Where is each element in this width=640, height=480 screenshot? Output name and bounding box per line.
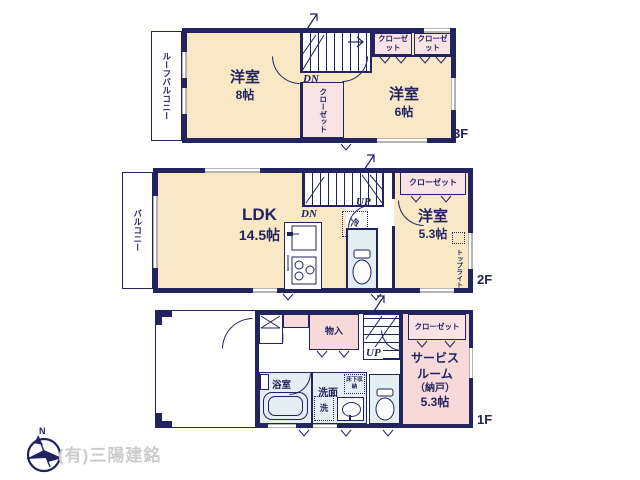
floor-label-3f: 3F [453, 126, 468, 141]
window [205, 168, 260, 173]
closet-door-mark [379, 56, 391, 64]
window [468, 233, 473, 269]
service-room-label: サービス ルーム （納戸） 5.3帖 [402, 350, 468, 412]
room-name: 洋室 [418, 207, 448, 227]
vent-mark [382, 429, 394, 437]
room-size: 8帖 [236, 88, 255, 104]
stairs-up-label-1f: UP [364, 347, 383, 359]
window [420, 288, 454, 293]
room-name: 洋室 [389, 85, 419, 105]
toilet-icon [372, 383, 398, 427]
service-room-line3: （納戸） [415, 382, 455, 395]
underfloor-storage: 床下収納 [344, 374, 365, 394]
floor-label-2f: 2F [477, 272, 492, 287]
room-label-west-3f: 洋室 8帖 [200, 65, 290, 107]
stairs-2f [302, 173, 384, 207]
closet-3f-center: クローゼット [302, 82, 344, 138]
window [268, 424, 296, 428]
roof-balcony: ルーフバルコニー [151, 31, 182, 141]
room-size: 6帖 [395, 105, 414, 121]
storage-closet: 物入 [309, 314, 359, 350]
closet-2f: クローゼット [400, 172, 466, 195]
room-size: 14.5帖 [239, 226, 280, 244]
closet-door-mark [444, 340, 456, 348]
vent-mark [298, 429, 310, 437]
balcony-2f: バルコニー [122, 172, 153, 289]
toilet-room-2f [346, 228, 378, 290]
kitchen-unit [284, 222, 322, 290]
washbasin-bowl [342, 402, 361, 417]
closet-1f: クローゼット [408, 314, 466, 340]
window [182, 52, 187, 78]
closet-door-mark [435, 56, 447, 64]
stair-arrow-3f [348, 36, 366, 48]
bathtub-inner [268, 396, 303, 416]
window [253, 288, 277, 293]
top-light-box [452, 232, 465, 244]
room-name: LDK [242, 204, 277, 226]
window [153, 196, 158, 268]
vent-mark [282, 293, 294, 301]
bathtub [263, 392, 308, 420]
bath-counter [260, 374, 269, 390]
closet-3f-ne2: クローゼット [414, 33, 451, 55]
room-size: 5.3帖 [419, 227, 448, 243]
room-name: 洋室 [230, 68, 260, 88]
washbasin [337, 397, 364, 421]
floorplan-canvas: ルーフバルコニー DN クローゼット クローゼット クローゼット 洋室 8帖 洋… [0, 0, 640, 480]
closet-door-mark [419, 56, 431, 64]
storage-strip [283, 314, 309, 328]
service-room-size: 5.3帖 [421, 395, 450, 411]
toilet-room-1f [369, 374, 400, 424]
floor-label-1f: 1F [477, 412, 492, 427]
window [313, 424, 337, 428]
closet-door-mark [395, 56, 407, 64]
toilet-icon [348, 236, 376, 294]
stair-direction-arrow-2f [362, 153, 378, 171]
room-label-east-3f: 洋室 6帖 [368, 82, 440, 124]
compass-n-label: N [39, 426, 46, 436]
top-light-label: トップライト [448, 246, 467, 290]
stair-direction-arrow-3f [305, 12, 321, 30]
closet-door-mark [416, 340, 428, 348]
laundry-spot: 洗 [314, 396, 334, 421]
wall-corner [155, 310, 162, 325]
vent-mark [340, 143, 352, 151]
washbasin-drain [349, 415, 351, 421]
stair-direction-arrow-1f [372, 294, 388, 312]
wall-segment [392, 226, 395, 290]
wall-segment [300, 33, 302, 73]
service-room-line2: ルーム [417, 367, 453, 383]
wall-corner [155, 413, 162, 428]
window [469, 348, 473, 378]
kitchen-fixtures [285, 223, 320, 288]
wall-segment [300, 82, 302, 138]
wall-segment [392, 173, 395, 199]
shoe-cabinet-x [260, 315, 281, 342]
stairs-winder-lines [304, 173, 384, 205]
closet-door-mark [316, 350, 328, 358]
closet-3f-ne1: クローゼット [374, 33, 412, 55]
vent-mark [340, 429, 352, 437]
window [377, 138, 427, 143]
window [451, 78, 456, 110]
company-name: (有)三陽建銘 [58, 441, 161, 466]
window [424, 28, 450, 33]
closet-door-mark [338, 350, 350, 358]
shoe-cabinet [259, 314, 283, 344]
service-room-line1: サービス [411, 351, 459, 367]
window [182, 88, 187, 114]
